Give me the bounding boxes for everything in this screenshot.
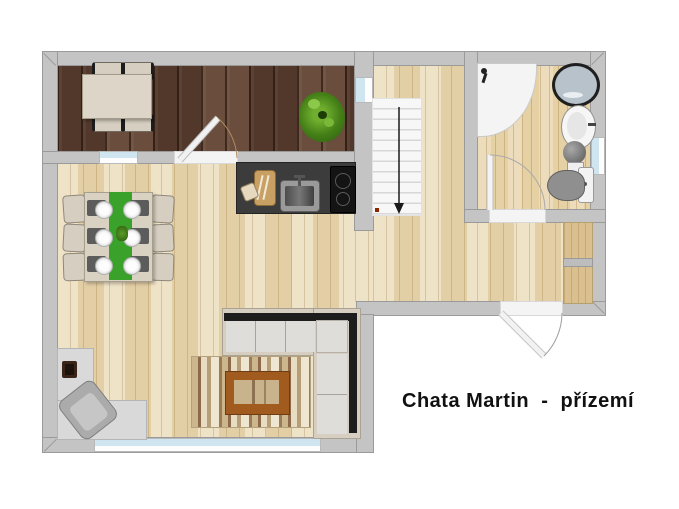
stairs-arrow-head: [394, 203, 404, 214]
entry-door-leaf: [501, 313, 544, 356]
terrace-door-leaf: [180, 118, 218, 160]
floorplan-title: Chata Martin - přízemí: [402, 390, 634, 413]
terrace-door-arc: [218, 118, 237, 158]
entry-door-arc: [544, 313, 562, 356]
floorplan-canvas: Chata Martin - přízemí: [0, 0, 679, 509]
bathroom-door-arc: [490, 155, 545, 210]
door-and-arrow-overlay: [0, 0, 679, 509]
